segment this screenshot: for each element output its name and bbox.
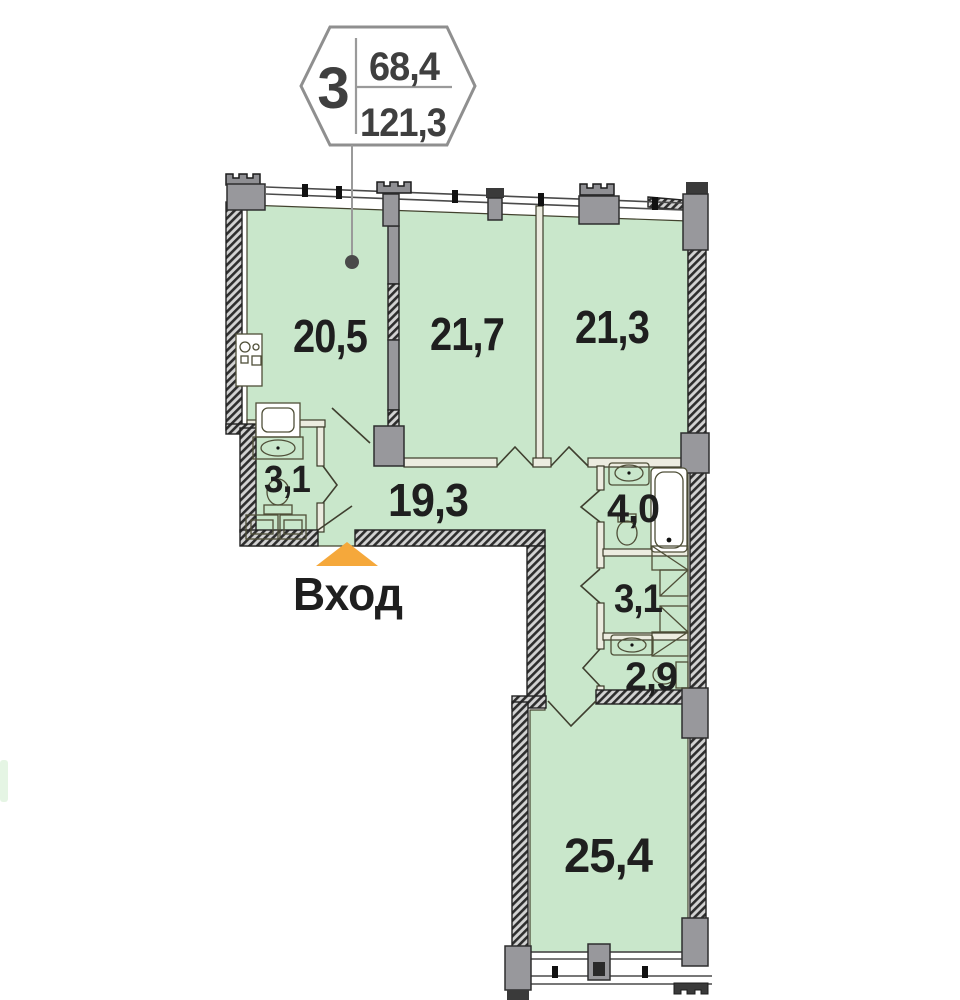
entrance-marker: Вход [293,542,403,620]
room-label-bathroom-1: 3,1 [264,459,311,501]
room-label-hallway: 19,3 [388,474,468,526]
room-label-bedroom-2: 21,3 [575,301,649,353]
room-label-bathroom-2: 4,0 [607,487,659,531]
kitchen-fixtures [236,334,262,386]
room-label-kitchen-living: 20,5 [293,310,367,362]
floor-plan-svg: 20,5 21,7 21,3 3,1 19,3 4,0 3,1 2,9 25,4… [0,0,960,1000]
stray-green-mark [0,760,8,802]
badge-upper-area: 68,4 [369,45,441,89]
stove-icon [236,334,262,386]
room-label-bedroom-1: 21,7 [430,308,504,360]
room-label-storage: 3,1 [614,577,663,621]
entrance-label: Вход [293,568,403,620]
room-label-wc: 2,9 [625,655,677,699]
badge-lower-area: 121,3 [360,101,446,145]
badge-rooms-count: 3 [317,56,348,121]
floor-plan-page: 20,5 21,7 21,3 3,1 19,3 4,0 3,1 2,9 25,4… [0,0,960,1000]
room-label-living-room: 25,4 [564,830,653,883]
badge-leader-dot [345,255,359,269]
